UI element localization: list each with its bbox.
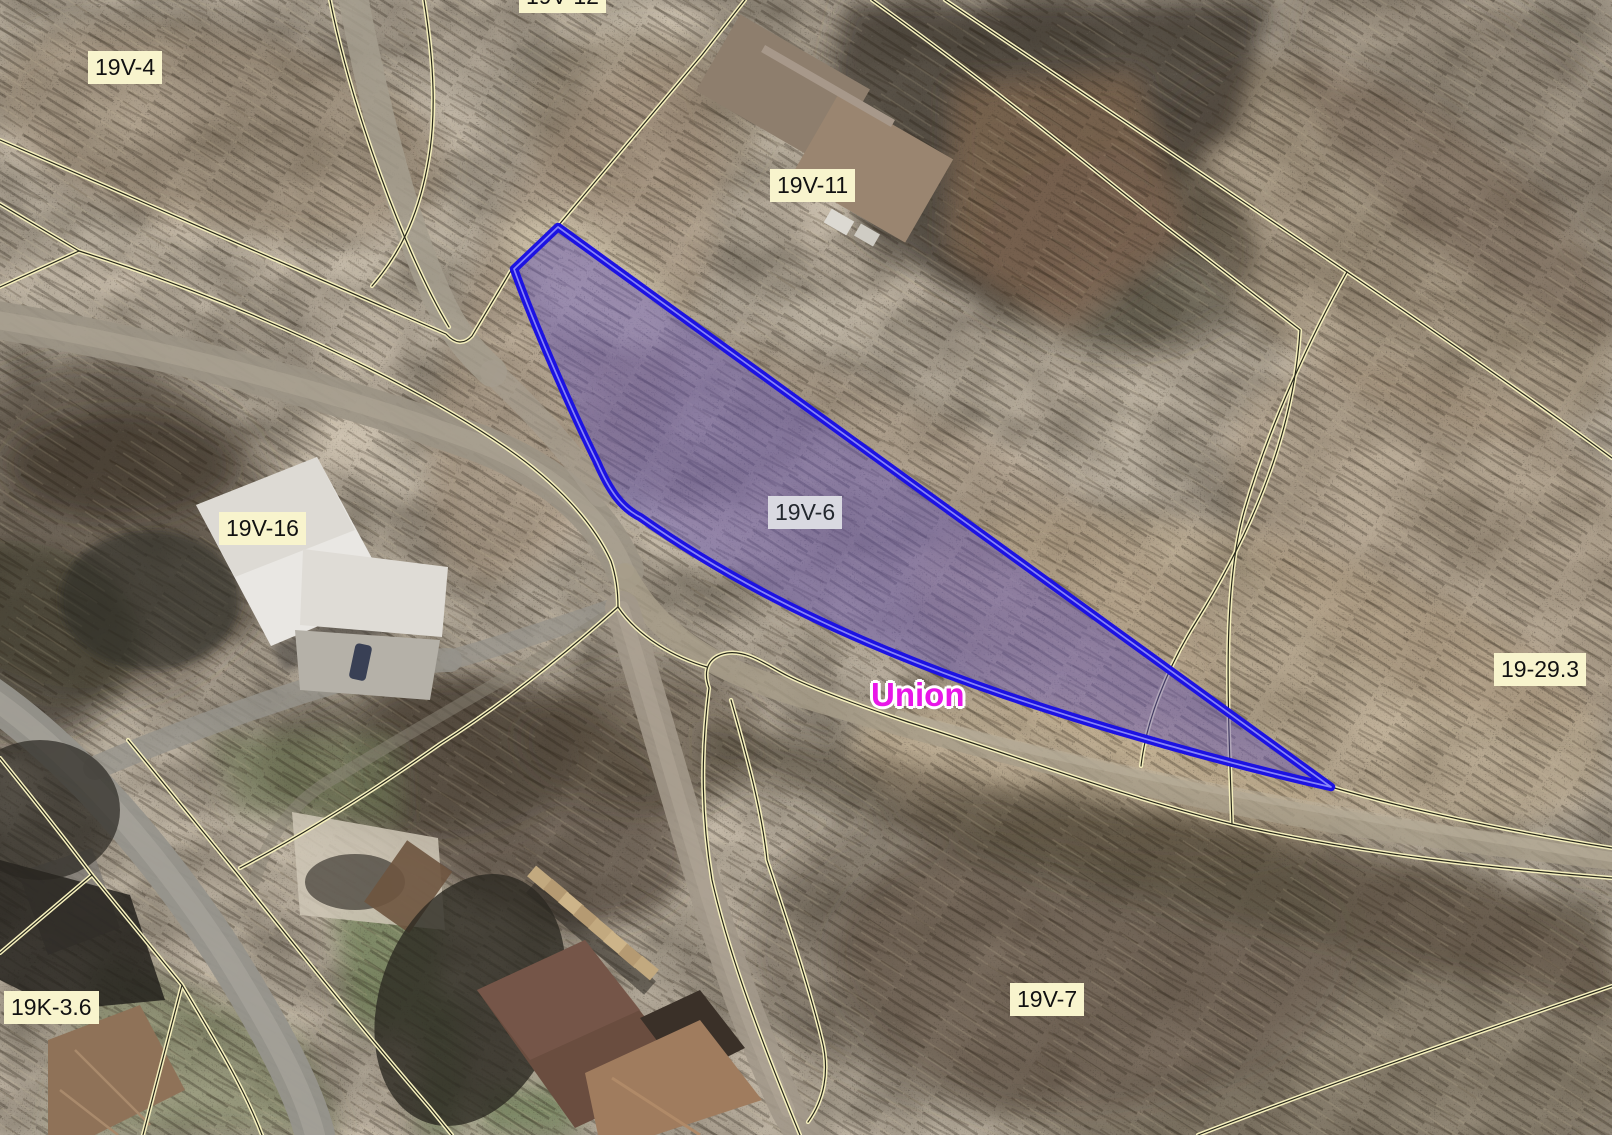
parcel-label-19v4: 19V-4 — [88, 51, 162, 84]
parcel-label-19v7: 19V-7 — [1010, 983, 1084, 1016]
parcel-label-19v6-selected: 19V-6 — [768, 496, 842, 529]
road-label-union: Union — [871, 676, 964, 714]
parcel-label-19-29-3: 19-29.3 — [1494, 653, 1586, 686]
parcel-label-19v12: 19V-12 — [519, 0, 606, 13]
map-viewport[interactable]: 19V-12 19V-4 19V-11 19V-16 19V-6 19-29.3… — [0, 0, 1612, 1135]
parcel-label-19v16: 19V-16 — [219, 512, 306, 545]
parcel-label-19k-3-6: 19K-3.6 — [4, 991, 99, 1024]
parcel-label-19v11: 19V-11 — [770, 169, 855, 202]
